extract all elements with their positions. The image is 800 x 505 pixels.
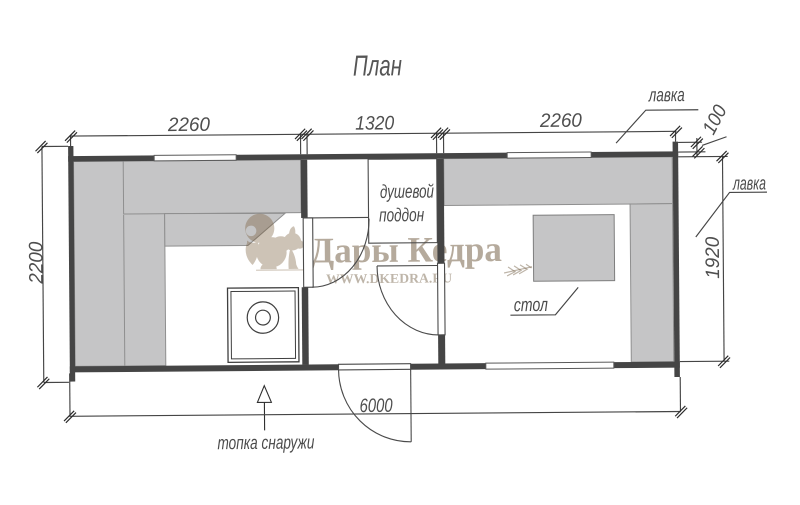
svg-text:топка снаружи: топка снаружи <box>217 432 314 454</box>
svg-text:2200: 2200 <box>25 241 47 284</box>
svg-text:1920: 1920 <box>702 237 724 279</box>
svg-text:стол: стол <box>514 295 548 316</box>
svg-text:лавка: лавка <box>648 85 685 106</box>
svg-text:2260: 2260 <box>539 110 582 132</box>
svg-text:1320: 1320 <box>355 112 394 134</box>
svg-text:душевой: душевой <box>380 182 434 203</box>
svg-text:лавка: лавка <box>732 173 766 194</box>
svg-text:Дары Кедра: Дары Кедра <box>310 229 502 271</box>
svg-text:6000: 6000 <box>360 395 393 417</box>
svg-text:План: План <box>353 50 402 82</box>
svg-text:WWW.DKEDRA.RU: WWW.DKEDRA.RU <box>326 270 452 286</box>
svg-text:поддон: поддон <box>379 205 425 226</box>
svg-text:2260: 2260 <box>167 114 210 136</box>
